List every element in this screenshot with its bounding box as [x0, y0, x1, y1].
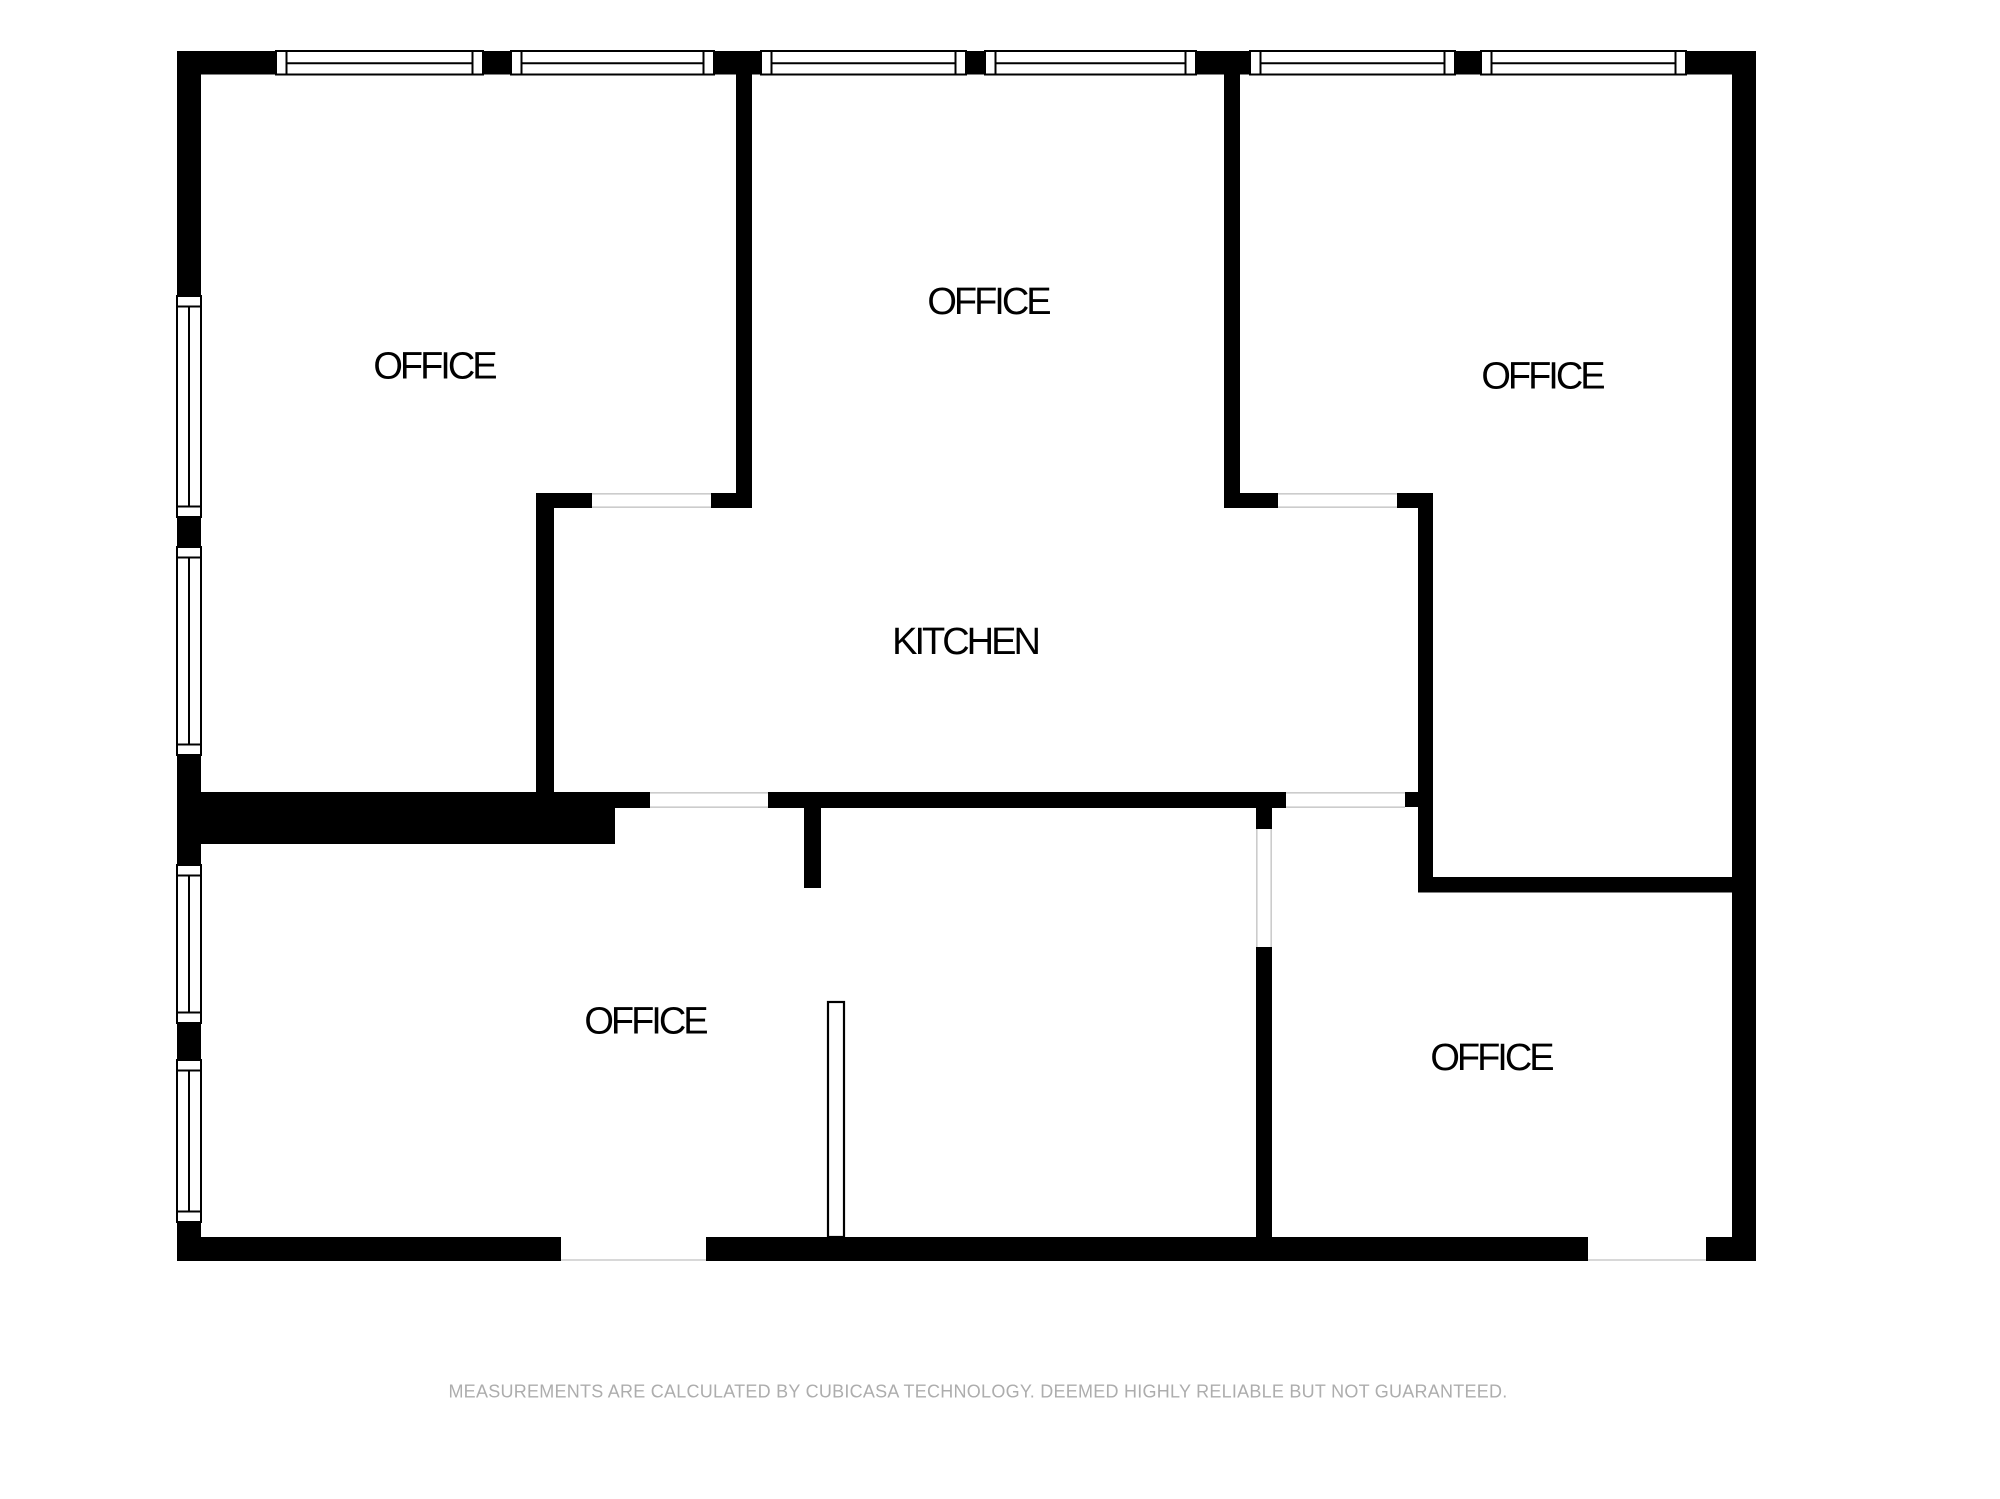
svg-text:OFFICE: OFFICE: [584, 1001, 707, 1043]
svg-text:KITCHEN: KITCHEN: [892, 621, 1038, 663]
svg-text:OFFICE: OFFICE: [1481, 356, 1604, 398]
svg-text:OFFICE: OFFICE: [1430, 1037, 1553, 1079]
svg-text:OFFICE: OFFICE: [373, 346, 496, 388]
svg-text:MEASUREMENTS ARE CALCULATED BY: MEASUREMENTS ARE CALCULATED BY CUBICASA …: [448, 1382, 1507, 1402]
svg-text:OFFICE: OFFICE: [927, 281, 1050, 323]
